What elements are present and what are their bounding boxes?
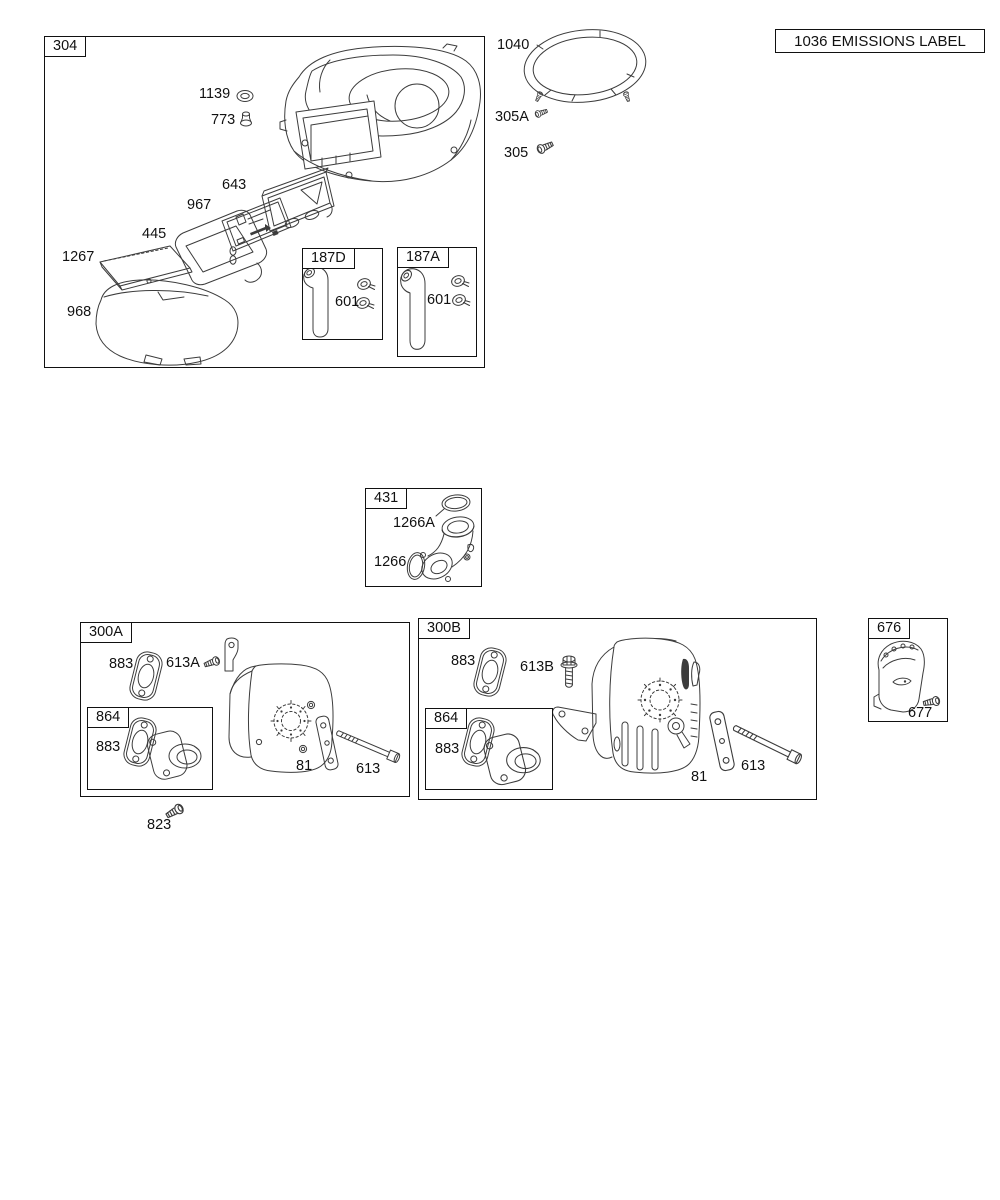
part-ref-968: 968 bbox=[67, 305, 91, 320]
part-ref-1267: 1267 bbox=[62, 250, 94, 265]
part-ref-1266: 1266 bbox=[374, 555, 406, 570]
group-187D-label: 187D bbox=[311, 250, 346, 266]
part-ref-1139: 1139 bbox=[199, 87, 230, 102]
group-676-label: 676 bbox=[877, 620, 901, 636]
screen-ring-1040-drawing bbox=[521, 24, 650, 108]
part-ref-445: 445 bbox=[142, 227, 166, 242]
group-431-box: 431 bbox=[365, 488, 482, 587]
group-431-label: 431 bbox=[374, 490, 398, 506]
screw-305-drawing bbox=[536, 140, 554, 155]
part-ref-883-864B: 883 bbox=[435, 742, 459, 757]
group-187A-tag: 187A bbox=[397, 247, 449, 268]
group-187D-tag: 187D bbox=[302, 248, 355, 269]
part-ref-677: 677 bbox=[908, 706, 932, 721]
group-864A-label: 864 bbox=[96, 709, 120, 725]
part-ref-305A: 305A bbox=[495, 110, 529, 125]
part-ref-883-300A: 883 bbox=[109, 657, 133, 672]
group-187A-label: 187A bbox=[406, 249, 440, 265]
group-304-label: 304 bbox=[53, 38, 77, 54]
part-ref-967: 967 bbox=[187, 198, 211, 213]
part-ref-613B: 613B bbox=[520, 660, 554, 675]
group-300B-label: 300B bbox=[427, 620, 461, 636]
part-ref-643: 643 bbox=[222, 178, 246, 193]
group-431-tag: 431 bbox=[365, 488, 407, 509]
emissions-label-callout: 1036 EMISSIONS LABEL bbox=[775, 29, 985, 53]
part-ref-883-864A: 883 bbox=[96, 740, 120, 755]
group-300A-label: 300A bbox=[89, 624, 123, 640]
part-ref-613-300B: 613 bbox=[741, 759, 765, 774]
part-ref-613-300A: 613 bbox=[356, 762, 380, 777]
part-ref-1040: 1040 bbox=[497, 38, 529, 53]
group-304-tag: 304 bbox=[44, 36, 86, 57]
group-864B-tag: 864 bbox=[425, 708, 467, 729]
group-864A-tag: 864 bbox=[87, 707, 129, 728]
part-ref-601-187A: 601 bbox=[427, 293, 451, 308]
group-676-tag: 676 bbox=[868, 618, 910, 639]
part-ref-601-187D: 601 bbox=[335, 295, 359, 310]
part-ref-823: 823 bbox=[147, 818, 171, 833]
group-300B-tag: 300B bbox=[418, 618, 470, 639]
part-ref-883-300B: 883 bbox=[451, 654, 475, 669]
part-ref-81-300A: 81 bbox=[296, 759, 312, 774]
screw-305A-drawing bbox=[534, 107, 548, 118]
part-ref-305: 305 bbox=[504, 146, 528, 161]
part-ref-81-300B: 81 bbox=[691, 770, 707, 785]
group-864B-label: 864 bbox=[434, 710, 458, 726]
part-ref-773: 773 bbox=[211, 113, 235, 128]
parts-diagram-page: 304 187D 187A 1036 EMISSIONS LABEL 431 3… bbox=[0, 0, 1000, 1200]
group-300A-tag: 300A bbox=[80, 622, 132, 643]
emissions-label-text: 1036 EMISSIONS LABEL bbox=[794, 33, 966, 50]
part-ref-1266A: 1266A bbox=[393, 516, 435, 531]
part-ref-613A: 613A bbox=[166, 656, 200, 671]
